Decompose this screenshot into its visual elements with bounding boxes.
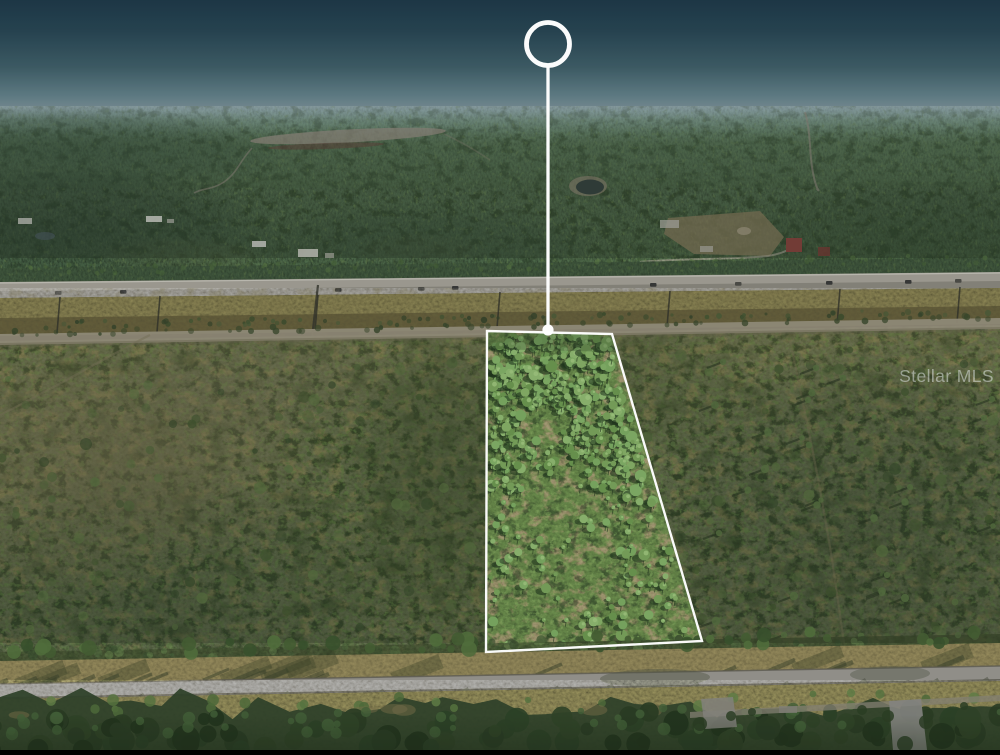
svg-text:Stellar MLS: Stellar MLS (899, 366, 994, 386)
